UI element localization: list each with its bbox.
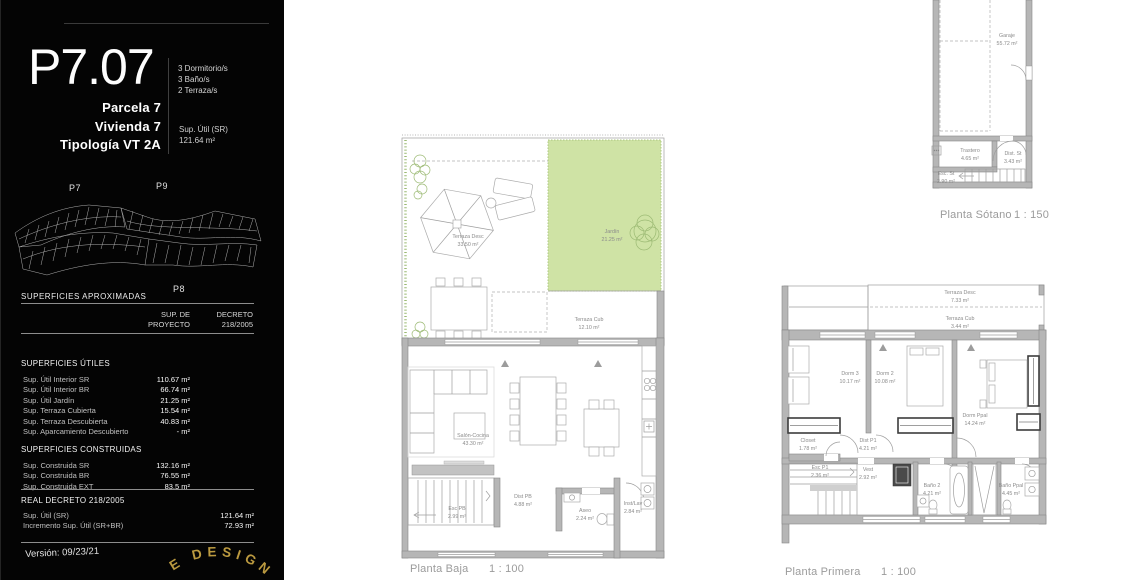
room-area: 3.44 m² (951, 324, 969, 330)
media-wall (412, 465, 494, 475)
room-label: Aseo (579, 508, 591, 514)
room-area: 55.72 m² (997, 41, 1018, 47)
unit-identity: Parcela 7 Vivienda 7 Tipología VT 2A (1, 99, 161, 155)
site-label-p9: P9 (156, 181, 168, 191)
room-label: Esc PB (448, 506, 466, 512)
wall (968, 462, 972, 515)
room-area: 10.17 m² (840, 379, 861, 385)
room-area: 2.90 m² (937, 179, 955, 185)
plan-scale-primera: 1 : 100 (881, 566, 916, 578)
wardrobe (1017, 414, 1040, 430)
vivienda: Vivienda 7 (1, 118, 161, 137)
wardrobe (1028, 356, 1039, 406)
door-opening (1015, 458, 1029, 464)
table-row: Sup. Útil Jardín21.25 m² (23, 396, 190, 406)
room-label: Esc. St (938, 171, 955, 177)
sup-util-value: 121.64 m² (179, 135, 228, 146)
wall (933, 0, 939, 188)
door-opening (1026, 66, 1032, 80)
room-area: 4.65 m² (961, 156, 979, 162)
door-arc (957, 438, 976, 457)
room-label: Esc P1 (812, 465, 829, 471)
spec-sheet: P7.07 3 Dormitorio/s 3 Baño/s 2 Terraza/… (0, 0, 1127, 580)
table-row: Sup. Terraza Cubierta15.54 m² (23, 406, 190, 416)
brand-logo-arc: E DESIGN (151, 536, 284, 580)
door-opening (930, 458, 944, 464)
door-arc (1011, 65, 1026, 80)
room-label: Vest (863, 467, 874, 473)
room-area: 4.21 m² (923, 491, 941, 497)
column-header-proyecto: SUP. DE PROYECTO (23, 310, 190, 330)
door-arc (840, 435, 858, 453)
construidas-table: Sup. Construida SR132.16 m² Sup. Constru… (23, 461, 190, 492)
room-label: Dorm 3 (841, 371, 858, 377)
wall (402, 338, 408, 558)
room-area: 1.78 m² (799, 446, 817, 452)
room-label: Baño 2 (924, 483, 941, 489)
room-area: 2.84 m² (624, 509, 642, 515)
unit-features: 3 Dormitorio/s 3 Baño/s 2 Terraza/s (178, 63, 228, 96)
bed (907, 346, 943, 406)
parking-space-dashed (940, 0, 990, 131)
parcela: Parcela 7 (1, 99, 161, 118)
room-label: Terraza Desc (452, 234, 484, 240)
door-opening (1000, 136, 1013, 141)
room-area: 2.24 m² (576, 516, 594, 522)
room-area: 14.24 m² (965, 421, 986, 427)
room-label: Dist P1 (859, 438, 876, 444)
unit-code: P7.07 (28, 42, 154, 92)
planta-baja-plan: Terraza Desc 33.50 m² Jardín 21.25 m² Te… (398, 131, 668, 565)
sun-loungers (486, 178, 535, 221)
dining-table (510, 377, 566, 445)
divider (168, 58, 169, 154)
table-row: Sup. Terraza Descubierta40.83 m² (23, 417, 190, 427)
table-row: Sup. Construida EXT83.5 m² (23, 482, 190, 492)
decreto-title: REAL DECRETO 218/2005 (21, 496, 125, 505)
room-label: Salón-Cocina (457, 433, 489, 439)
bath-ppal-fixtures (973, 464, 1039, 515)
parasol (421, 189, 494, 259)
table-row: Sup. Útil Interior SR110.67 m² (23, 375, 190, 385)
entry-arrow-icon (967, 344, 975, 351)
room-label: Dist. St (1004, 151, 1022, 157)
room-area: 3.43 m² (1004, 159, 1022, 165)
twin-beds (788, 346, 809, 404)
decreto-table: Sup. Útil (SR)121.64 m² Incremento Sup. … (23, 511, 254, 532)
table-row: Incremento Sup. Útil (SR+BR)72.93 m² (23, 521, 254, 531)
planta-primera-plan: Terraza Desc 7.33 m² Terraza Cub 3.44 m²… (780, 278, 1048, 558)
room-area: 4.45 m² (1002, 491, 1020, 497)
wall (782, 286, 788, 330)
entry-arrow-icon (879, 344, 887, 351)
wall (494, 478, 500, 527)
wall (933, 136, 1032, 141)
room-area: 7.33 m² (951, 298, 969, 304)
divider (64, 23, 269, 24)
wall (1039, 285, 1044, 295)
door-opening (858, 458, 874, 464)
door-arc (876, 435, 893, 452)
divider (21, 303, 254, 304)
room-area: 21.25 m² (602, 237, 623, 243)
feature-terrazas: 2 Terraza/s (178, 85, 228, 96)
room-area: 12.10 m² (579, 325, 600, 331)
sup-util-label: Sup. Útil (SR) (179, 124, 228, 135)
plan-scale-sotano: 1 : 150 (1014, 209, 1049, 221)
table-row: Sup. Construida SR132.16 m² (23, 461, 190, 471)
stair-landing (810, 485, 857, 491)
room-area: 2.36 m² (811, 473, 829, 479)
feature-banos: 3 Baño/s (178, 74, 228, 85)
plan-title-primera: Planta Primera (785, 566, 861, 578)
version-label: Versión: 09/23/21 (25, 546, 99, 560)
room-area: 10.08 m² (875, 379, 896, 385)
entry-arrow-icon (501, 360, 509, 367)
info-sidebar: P7.07 3 Dormitorio/s 3 Baño/s 2 Terraza/… (0, 0, 284, 580)
annex-outline (784, 286, 868, 330)
room-label: Terraza Cub (946, 316, 975, 322)
room-area: 4.21 m² (859, 446, 877, 452)
plan-title-sotano: Planta Sótano (940, 209, 1012, 221)
wall (614, 478, 620, 558)
construidas-title: SUPERFICIES CONSTRUIDAS (21, 445, 142, 454)
column-header-decreto: DECRETO 218/2005 (193, 310, 253, 330)
table-row: Sup. Útil Interior BR66.74 m² (23, 385, 190, 395)
room-area: 2.99 m² (448, 514, 466, 520)
feature-dormitorios: 3 Dormitorio/s (178, 63, 228, 74)
double-bed (980, 360, 1027, 408)
tree-icon (410, 155, 430, 199)
garden-area (548, 140, 661, 291)
wall (657, 291, 664, 345)
tipologia: Tipología VT 2A (1, 136, 161, 155)
room-area: 2.92 m² (859, 475, 877, 481)
table-row: Sup. Aparcamiento Descubierto- m² (23, 427, 190, 437)
wardrobe (788, 418, 840, 433)
room-label: Jardín (605, 229, 620, 235)
wardrobe (898, 418, 953, 433)
room-label: Closet (800, 438, 816, 444)
room-label: Baño Ppal (999, 483, 1023, 489)
covered-terrace-dashed (492, 292, 547, 332)
room-label: Trastero (960, 148, 980, 154)
logo-text: E DESIGN (167, 544, 277, 580)
kitchen-counter (642, 346, 656, 476)
room-area: 43.30 m² (463, 441, 484, 447)
plan-scale-baja: 1 : 100 (489, 563, 524, 575)
surfaces-title: SUPERFICIES APROXIMADAS (21, 292, 146, 301)
room-label: Terraza Desc (944, 290, 976, 296)
tree-icon (412, 322, 428, 338)
room-label: Inst/Lav (624, 501, 643, 507)
table-row: Sup. Útil (SR)121.64 m² (23, 511, 254, 521)
room-label: Garaje (999, 33, 1015, 39)
room-label: Terraza Cub (575, 317, 604, 323)
plan-title-baja: Planta Baja (410, 563, 468, 575)
utiles-title: SUPERFICIES ÚTILES (21, 359, 110, 368)
entry-arrow-icon (594, 360, 602, 367)
wall (1026, 0, 1032, 188)
tv (444, 461, 484, 464)
room-label: Dist PB (514, 494, 532, 500)
wall (866, 340, 871, 433)
bath2-fixtures (917, 466, 968, 514)
divider (21, 489, 254, 490)
wall (656, 338, 664, 558)
site-label-p8: P8 (173, 284, 185, 294)
site-plan-wireframe (9, 181, 275, 289)
site-label-p7: P7 (69, 183, 81, 193)
outdoor-dining-table (431, 278, 487, 339)
room-label: Dorm 2 (876, 371, 893, 377)
breakfast-table (584, 400, 619, 456)
divider (21, 333, 254, 334)
room-label: Dorm Ppal (962, 413, 987, 419)
room-area: 33.50 m² (458, 242, 479, 248)
planta-sotano-plan: Garaje 55.72 m² Trastero 4.65 m² Dist. S… (930, 0, 1035, 195)
room-area: 4.88 m² (514, 502, 532, 508)
table-row: Sup. Construida BR76.55 m² (23, 471, 190, 481)
sup-util-summary: Sup. Útil (SR) 121.64 m² (179, 124, 228, 146)
utiles-table: Sup. Útil Interior SR110.67 m² Sup. Útil… (23, 375, 190, 437)
